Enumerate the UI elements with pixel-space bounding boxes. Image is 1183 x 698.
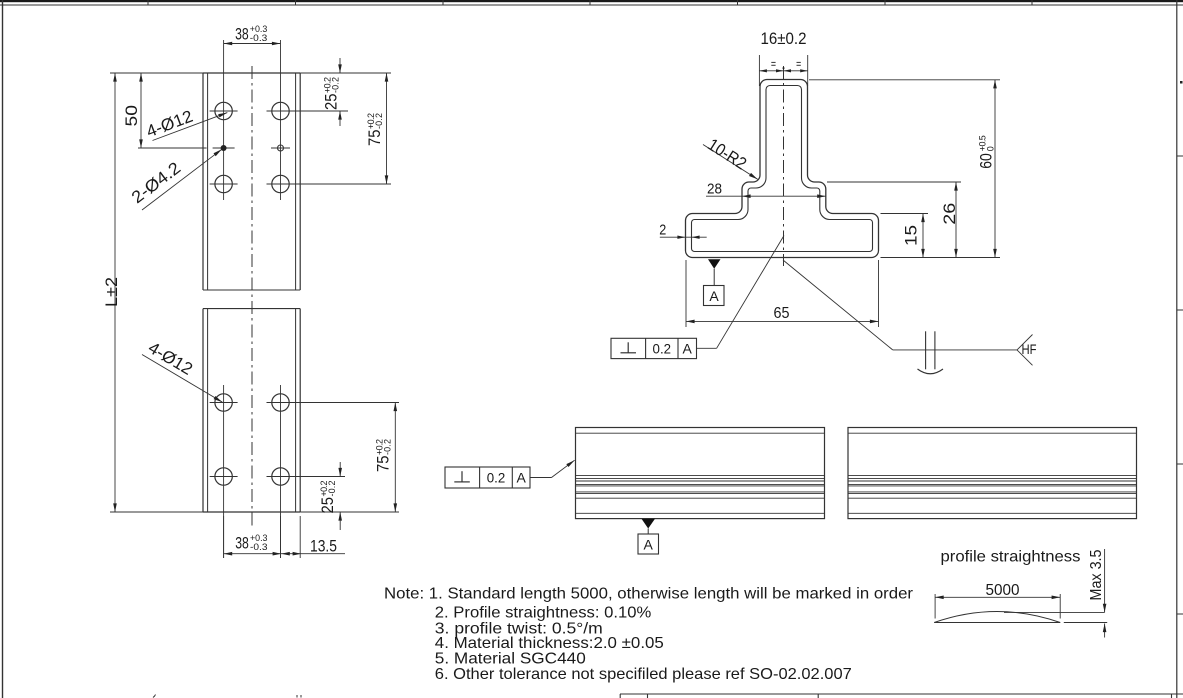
svg-text:16±0.2: 16±0.2 <box>761 29 807 48</box>
svg-text:38: 38 <box>235 534 249 553</box>
svg-text:75: 75 <box>365 130 384 147</box>
svg-text:-0.2: -0.2 <box>327 481 337 497</box>
svg-text:profile straightness: profile straightness <box>941 549 1081 566</box>
svg-text:Note: 1. Standard length 5000,: Note: 1. Standard length 5000, otherwise… <box>384 586 914 603</box>
svg-text:Max 3.5: Max 3.5 <box>1088 549 1105 600</box>
svg-text:13.5: 13.5 <box>310 537 337 556</box>
svg-text:-0.3: -0.3 <box>250 33 267 43</box>
svg-text:60: 60 <box>977 153 996 169</box>
svg-text:65: 65 <box>774 305 790 322</box>
svg-text:38: 38 <box>235 24 249 43</box>
svg-text:4-Ø12: 4-Ø12 <box>145 338 196 379</box>
svg-text:2. Profile straightness: 0.10%: 2. Profile straightness: 0.10% <box>435 605 652 622</box>
svg-text:A: A <box>709 288 719 304</box>
svg-text:0.2: 0.2 <box>487 470 506 486</box>
svg-text:28: 28 <box>707 181 722 198</box>
svg-text:25: 25 <box>318 497 337 514</box>
svg-text:25: 25 <box>322 94 341 111</box>
svg-text:2: 2 <box>659 221 666 238</box>
svg-text:15: 15 <box>902 225 921 246</box>
svg-text:4-Ø12: 4-Ø12 <box>144 107 196 142</box>
svg-text:10-R2: 10-R2 <box>704 135 750 174</box>
svg-text:26: 26 <box>940 203 959 225</box>
svg-text:L±2: L±2 <box>102 277 121 307</box>
svg-text:HF: HF <box>1022 342 1037 357</box>
svg-text:-0.3: -0.3 <box>250 542 268 552</box>
svg-text:A: A <box>517 470 527 486</box>
svg-text:6. Other tolerance not specifi: 6. Other tolerance not specifiled please… <box>435 666 852 683</box>
svg-text:50: 50 <box>122 105 141 127</box>
svg-text:A: A <box>644 537 654 553</box>
svg-text:4. Material thickness:2.0 ±0.0: 4. Material thickness:2.0 ±0.05 <box>435 635 664 652</box>
svg-text:75: 75 <box>374 456 393 473</box>
svg-text:0.2: 0.2 <box>653 341 672 357</box>
svg-text:0: 0 <box>986 146 996 151</box>
svg-text:-0.2: -0.2 <box>374 113 384 129</box>
svg-text:5000: 5000 <box>986 582 1020 599</box>
svg-text:A: A <box>683 341 693 357</box>
svg-text:-0.2: -0.2 <box>331 77 341 93</box>
svg-text:-0.2: -0.2 <box>383 439 393 455</box>
